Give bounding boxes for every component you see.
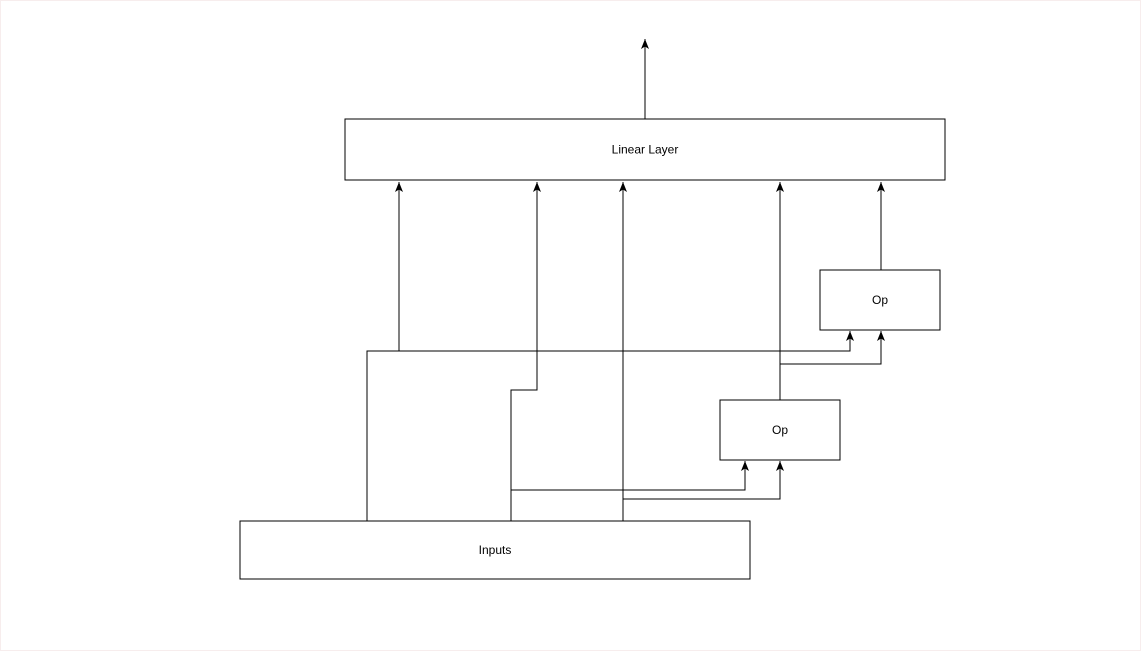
node-inputs: Inputs xyxy=(240,521,750,579)
node-inputs-label: Inputs xyxy=(479,543,512,557)
diagram-page: Linear LayerOpOpInputs xyxy=(0,0,1141,651)
node-op-1-label: Op xyxy=(872,293,888,307)
diagram-canvas: Linear LayerOpOpInputs xyxy=(0,0,1141,651)
nodes-layer: Linear LayerOpOpInputs xyxy=(240,119,945,579)
node-linear-layer: Linear Layer xyxy=(345,119,945,180)
node-op-2: Op xyxy=(720,400,840,460)
edge-inputs-to-op2-right xyxy=(623,461,780,521)
edge-op2-to-op1 xyxy=(780,331,881,400)
node-op-1: Op xyxy=(820,270,940,330)
node-op-2-label: Op xyxy=(772,423,788,437)
edge-inputs-to-op2-left xyxy=(511,461,745,521)
node-linear-layer-label: Linear Layer xyxy=(612,143,679,157)
